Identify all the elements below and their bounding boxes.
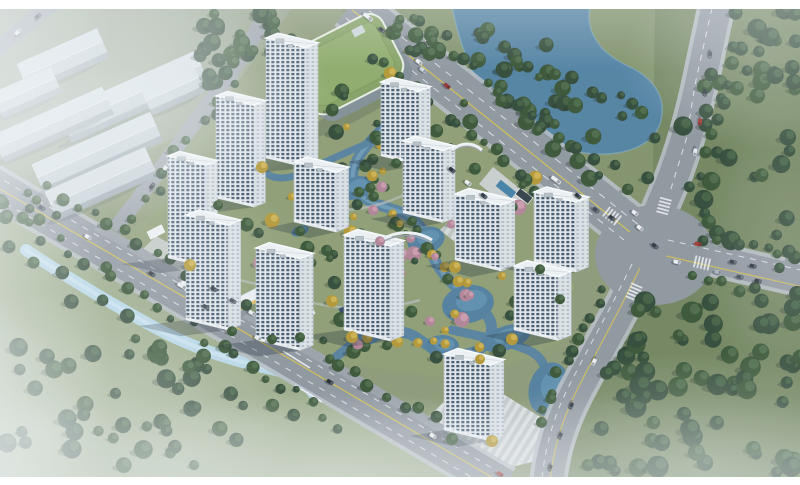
- cool-color-cast: [0, 0, 800, 485]
- haze-layer: [0, 0, 800, 485]
- aerial-rendering-stage: [0, 0, 800, 485]
- bottom-white-band: [0, 477, 800, 485]
- scene-layers: [0, 0, 800, 485]
- aerial-site-plan-rendering: [0, 0, 800, 485]
- top-white-band: [0, 0, 800, 9]
